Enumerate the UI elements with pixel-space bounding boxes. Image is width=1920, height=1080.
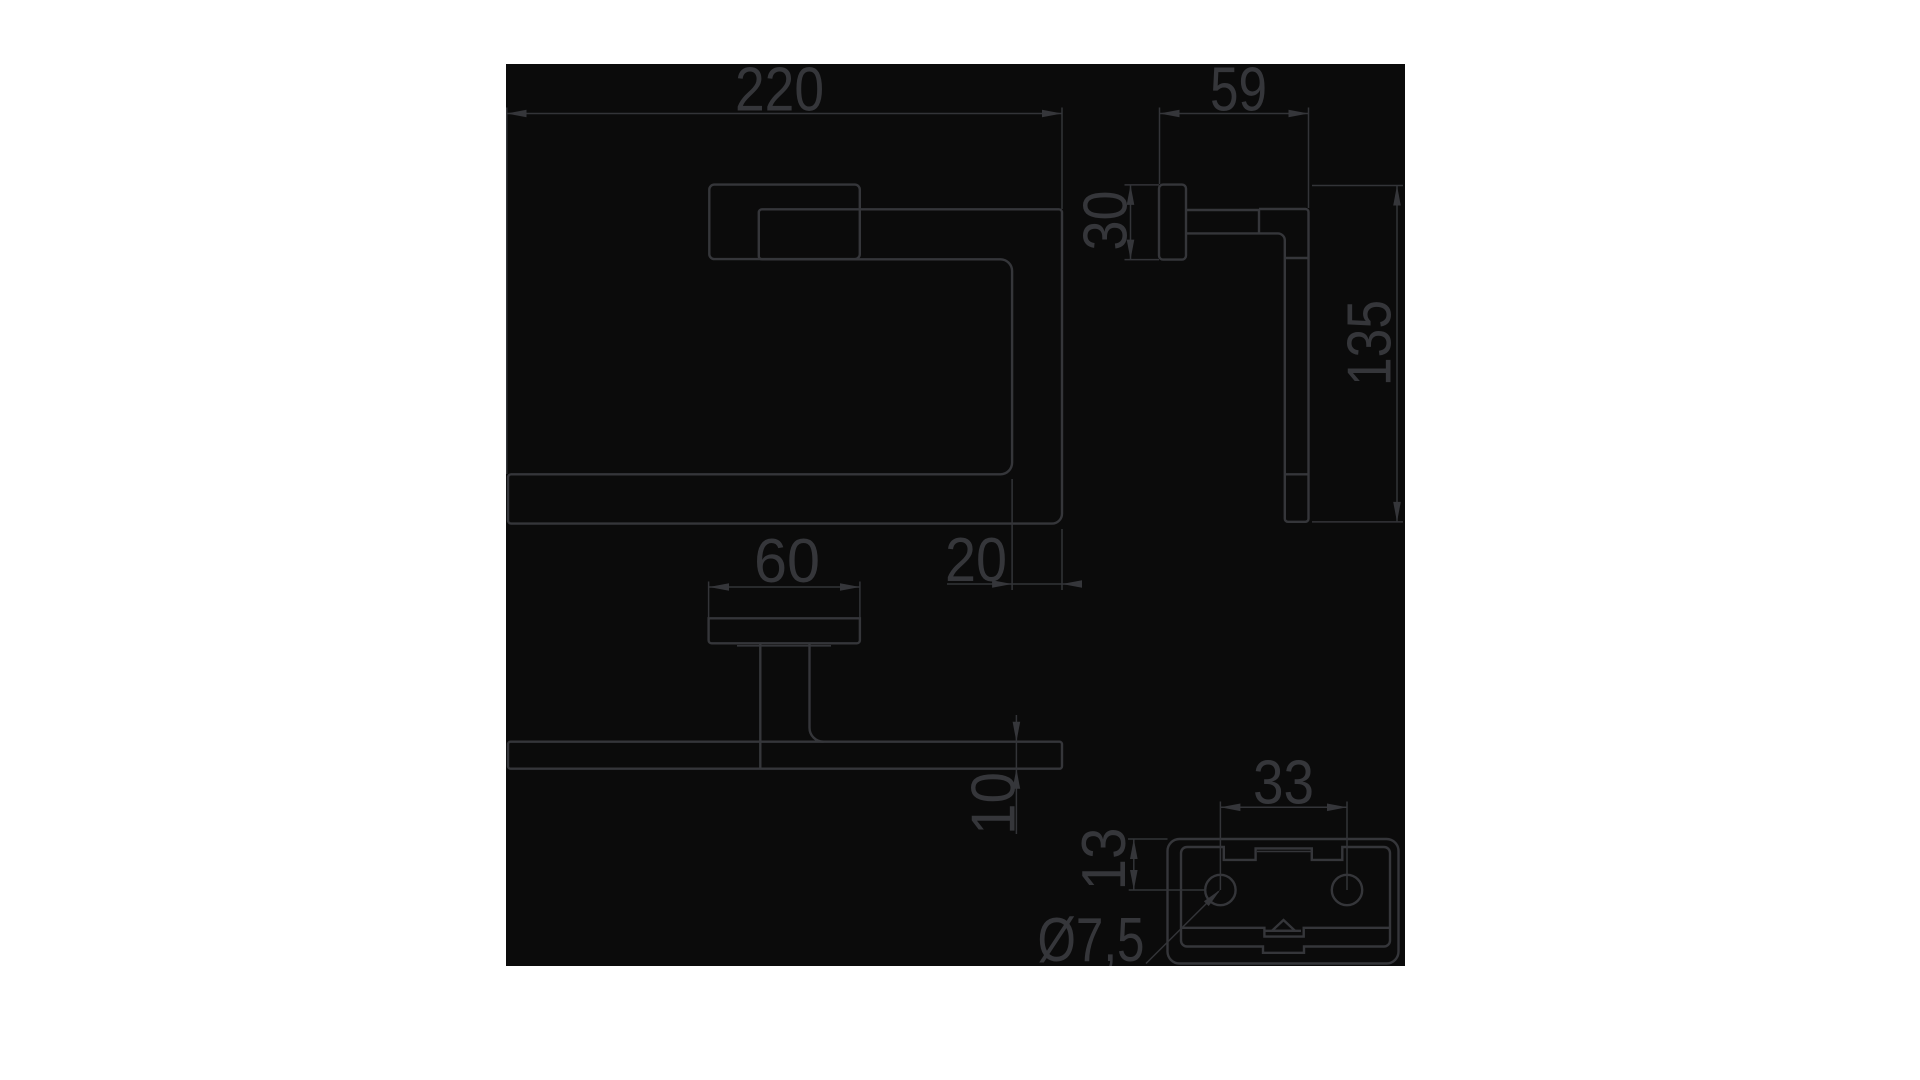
svg-text:33: 33 xyxy=(1253,749,1314,818)
svg-text:60: 60 xyxy=(754,527,820,596)
svg-text:20: 20 xyxy=(945,526,1007,595)
svg-text:135: 135 xyxy=(1336,300,1405,386)
svg-text:59: 59 xyxy=(1210,56,1267,125)
svg-text:Ø7,5: Ø7,5 xyxy=(1038,906,1145,975)
svg-text:13: 13 xyxy=(1070,828,1139,891)
svg-text:30: 30 xyxy=(1072,191,1141,251)
svg-text:10: 10 xyxy=(960,772,1029,835)
svg-text:220: 220 xyxy=(735,56,824,125)
